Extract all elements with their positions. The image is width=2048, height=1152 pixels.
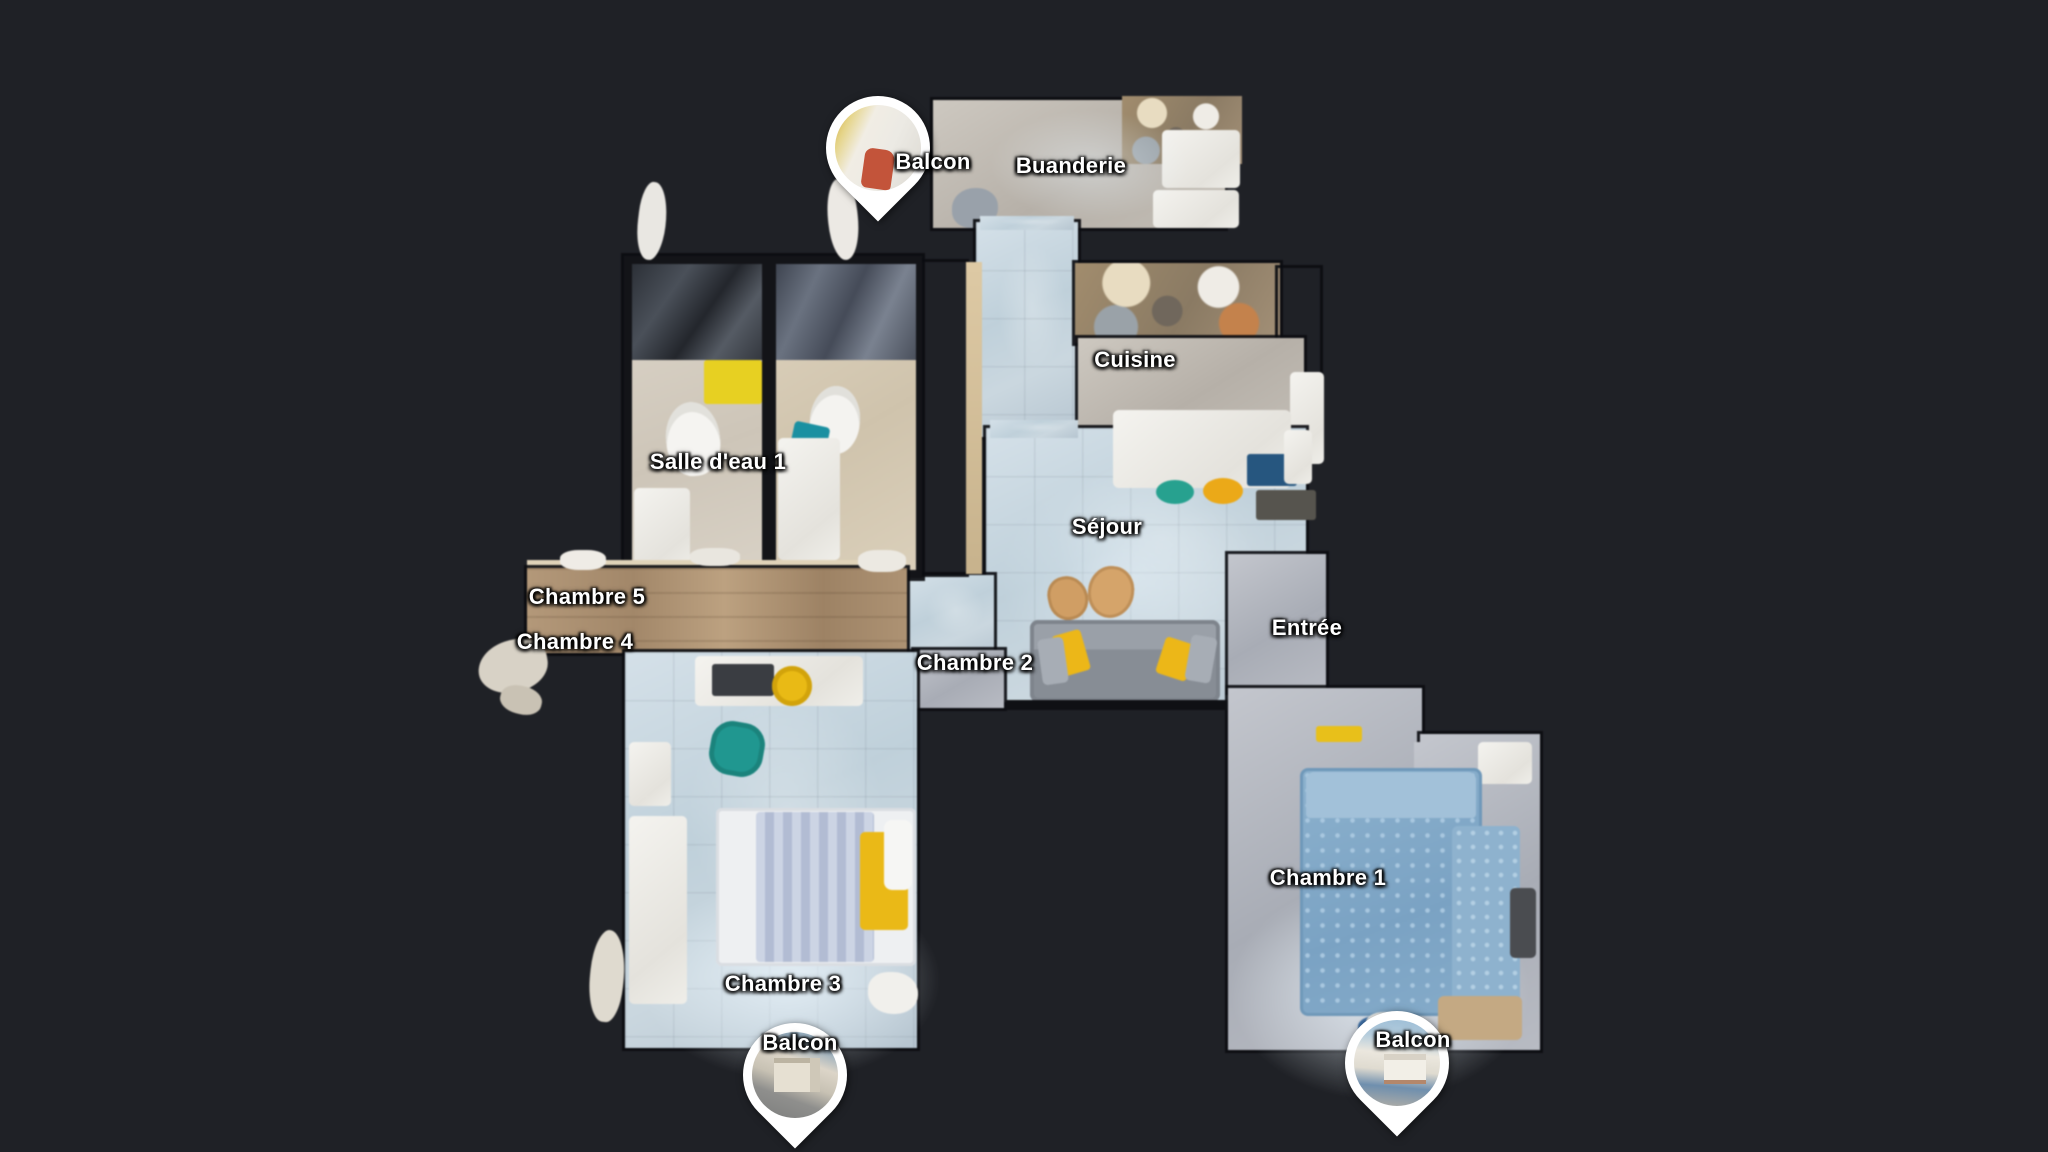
room-label-salle-deau-1: Salle d'eau 1 xyxy=(650,449,786,475)
seam-cover xyxy=(980,216,1074,230)
bathroom-counter xyxy=(778,438,840,560)
pillow xyxy=(884,820,912,890)
room-label-entree: Entrée xyxy=(1272,615,1342,641)
room-label-chambre-3: Chambre 3 xyxy=(725,971,841,997)
door-mat xyxy=(1256,490,1316,520)
yellow-chair xyxy=(1203,478,1243,504)
side-shelf xyxy=(629,742,671,806)
yellow-bath-mat xyxy=(704,360,762,404)
salle-deau-1-mirror xyxy=(632,264,762,360)
yellow-stool xyxy=(772,666,812,706)
nightstand xyxy=(1478,742,1532,784)
teal-chair xyxy=(1156,480,1194,504)
room-label-balcon-bottom-right: Balcon xyxy=(1375,1027,1450,1053)
striped-duvet xyxy=(756,812,874,962)
room-label-buanderie: Buanderie xyxy=(1016,153,1126,179)
pano-pin-balcon-top[interactable] xyxy=(826,96,930,200)
room-label-balcon-bottom-left: Balcon xyxy=(762,1030,837,1056)
mesh-fragment xyxy=(690,548,740,566)
shoes-clutter xyxy=(868,972,918,1014)
mesh-fragment xyxy=(585,928,628,1023)
white-chair xyxy=(1284,430,1312,484)
room-label-balcon-top: Balcon xyxy=(895,149,970,175)
balcony-photo-thumbnail xyxy=(835,105,921,191)
torn-edge xyxy=(1006,700,1228,710)
mesh-fragment xyxy=(858,550,906,572)
room-label-chambre-5: Chambre 5 xyxy=(529,584,645,610)
desk-monitor xyxy=(712,664,774,696)
chambre1-wardrobe-clutter xyxy=(1230,690,1420,756)
salle-deau-2-marble xyxy=(776,264,916,360)
room-label-chambre-4: Chambre 4 xyxy=(517,629,633,655)
mesh-fragment xyxy=(560,550,606,570)
bed-pillows xyxy=(1306,772,1476,818)
street-building-detail xyxy=(774,1058,820,1092)
bench xyxy=(1438,996,1522,1040)
room-label-sejour: Séjour xyxy=(1072,514,1142,540)
yellow-box xyxy=(1316,726,1362,742)
dark-clutter xyxy=(1510,888,1536,958)
room-label-chambre-1: Chambre 1 xyxy=(1270,865,1386,891)
seam-cover xyxy=(990,420,1078,438)
room-label-chambre-2: Chambre 2 xyxy=(917,650,1033,676)
room-label-cuisine: Cuisine xyxy=(1094,347,1176,373)
balcony-chair-detail xyxy=(860,147,895,191)
mesh-fragment xyxy=(633,181,670,262)
hallway-floor xyxy=(976,222,1078,437)
mesh-fragment xyxy=(497,681,545,718)
dollhouse-view: Balcon Buanderie Cuisine Salle d'eau 1 S… xyxy=(0,0,2048,1152)
wood-threshold xyxy=(966,262,982,574)
wardrobe xyxy=(629,816,687,1004)
kitchen-counter-clutter xyxy=(1075,263,1280,343)
house-facade-detail xyxy=(1384,1054,1426,1084)
sejour-floor-ext xyxy=(908,575,994,661)
